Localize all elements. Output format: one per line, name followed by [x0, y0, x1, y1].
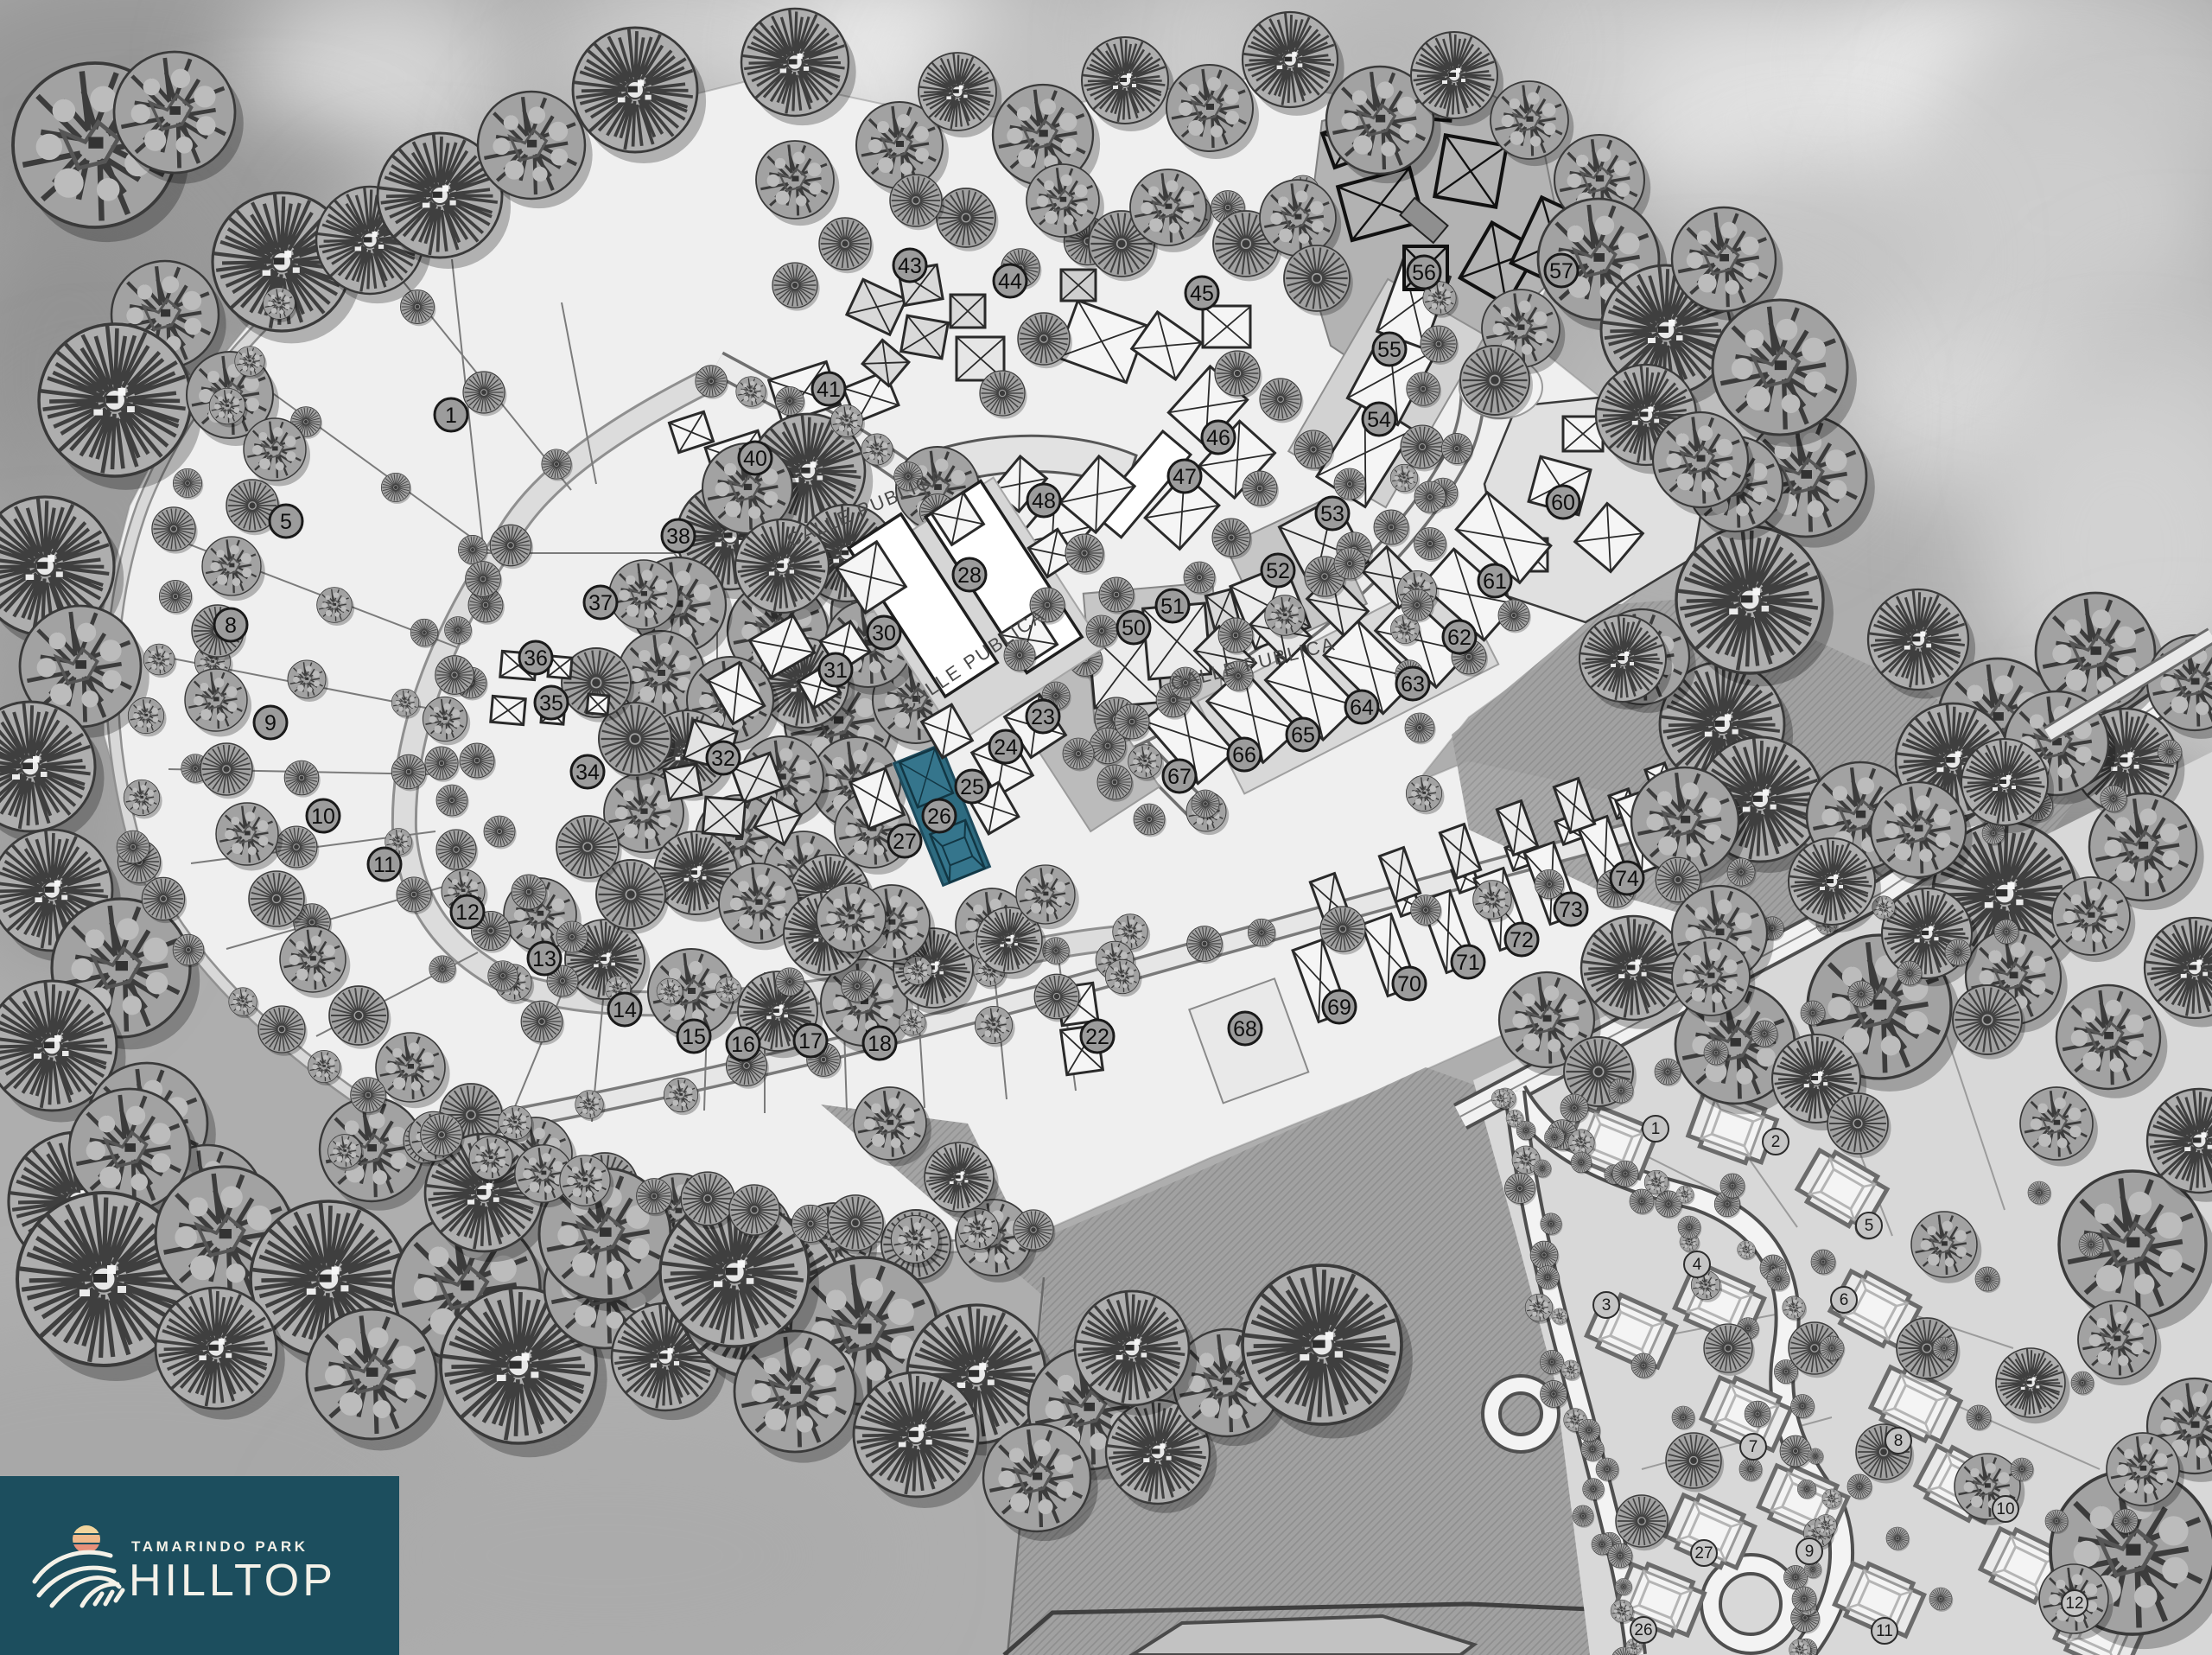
- svg-text:2: 2: [1771, 1133, 1781, 1151]
- svg-text:45: 45: [1190, 282, 1214, 306]
- svg-text:17: 17: [798, 1029, 823, 1053]
- svg-text:14: 14: [613, 998, 637, 1022]
- svg-text:7: 7: [1749, 1438, 1758, 1456]
- svg-text:43: 43: [898, 254, 922, 278]
- svg-text:74: 74: [1615, 867, 1639, 891]
- svg-text:69: 69: [1327, 996, 1351, 1020]
- svg-text:18: 18: [868, 1032, 892, 1056]
- svg-text:26: 26: [927, 805, 951, 829]
- svg-text:37: 37: [588, 591, 613, 615]
- svg-text:25: 25: [960, 775, 984, 799]
- svg-text:12: 12: [2065, 1595, 2083, 1613]
- svg-text:47: 47: [1173, 465, 1197, 489]
- svg-text:63: 63: [1401, 672, 1425, 697]
- svg-text:27: 27: [1694, 1544, 1713, 1563]
- svg-text:55: 55: [1377, 338, 1402, 362]
- svg-text:66: 66: [1232, 743, 1256, 767]
- svg-text:72: 72: [1510, 928, 1534, 952]
- svg-text:11: 11: [1876, 1622, 1893, 1640]
- svg-text:50: 50: [1122, 616, 1146, 640]
- svg-text:31: 31: [823, 659, 848, 683]
- svg-text:13: 13: [532, 947, 556, 971]
- svg-text:70: 70: [1397, 972, 1421, 996]
- svg-text:52: 52: [1266, 559, 1290, 583]
- svg-text:54: 54: [1367, 408, 1391, 432]
- svg-text:32: 32: [711, 747, 735, 771]
- svg-text:HILLTOP: HILLTOP: [129, 1556, 336, 1606]
- svg-text:40: 40: [743, 447, 767, 471]
- svg-text:12: 12: [455, 901, 480, 925]
- svg-text:23: 23: [1031, 705, 1055, 729]
- svg-text:8: 8: [225, 614, 237, 638]
- svg-text:68: 68: [1233, 1017, 1257, 1041]
- svg-text:24: 24: [994, 735, 1018, 760]
- svg-text:65: 65: [1291, 723, 1315, 748]
- svg-text:6: 6: [1840, 1291, 1849, 1309]
- svg-text:10: 10: [311, 805, 335, 829]
- svg-text:16: 16: [731, 1033, 755, 1057]
- svg-text:5: 5: [280, 510, 292, 534]
- svg-text:53: 53: [1320, 502, 1344, 526]
- svg-text:48: 48: [1032, 489, 1056, 513]
- svg-text:5: 5: [1865, 1217, 1874, 1235]
- svg-text:1: 1: [1651, 1120, 1661, 1138]
- svg-text:9: 9: [264, 711, 276, 735]
- svg-text:8: 8: [1894, 1432, 1904, 1450]
- svg-text:71: 71: [1456, 951, 1480, 975]
- svg-text:46: 46: [1206, 426, 1230, 450]
- svg-text:15: 15: [682, 1025, 706, 1049]
- svg-text:64: 64: [1350, 696, 1374, 720]
- svg-text:61: 61: [1483, 570, 1507, 594]
- svg-text:56: 56: [1412, 261, 1436, 285]
- svg-text:1: 1: [445, 404, 457, 428]
- svg-text:41: 41: [817, 378, 841, 402]
- svg-text:22: 22: [1085, 1025, 1109, 1049]
- svg-text:57: 57: [1549, 259, 1573, 283]
- svg-text:3: 3: [1602, 1296, 1611, 1314]
- svg-text:35: 35: [539, 691, 563, 716]
- svg-text:34: 34: [575, 761, 600, 785]
- svg-text:38: 38: [666, 525, 690, 549]
- svg-text:44: 44: [998, 270, 1022, 294]
- svg-text:73: 73: [1559, 898, 1583, 922]
- svg-text:28: 28: [957, 563, 982, 588]
- svg-text:27: 27: [893, 830, 917, 854]
- svg-text:62: 62: [1447, 626, 1471, 650]
- svg-text:51: 51: [1160, 595, 1185, 619]
- svg-text:9: 9: [1805, 1543, 1815, 1561]
- svg-text:60: 60: [1551, 491, 1575, 515]
- svg-text:26: 26: [1634, 1621, 1652, 1639]
- svg-text:11: 11: [373, 853, 396, 877]
- svg-text:TAMARINDO PARK: TAMARINDO PARK: [131, 1538, 308, 1555]
- svg-text:10: 10: [1996, 1500, 2014, 1518]
- svg-text:36: 36: [524, 646, 548, 671]
- svg-text:30: 30: [872, 621, 896, 646]
- svg-text:4: 4: [1693, 1256, 1702, 1274]
- svg-text:67: 67: [1167, 765, 1192, 789]
